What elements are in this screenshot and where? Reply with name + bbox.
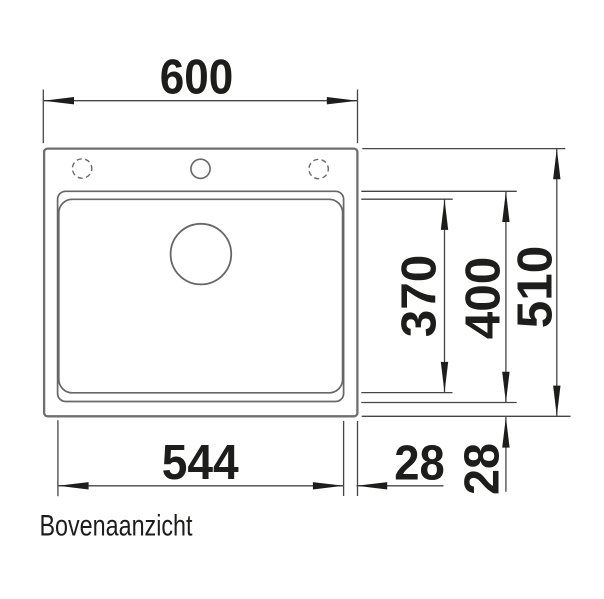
svg-text:370: 370: [393, 255, 447, 338]
svg-text:600: 600: [160, 50, 234, 104]
svg-text:Bovenaanzicht: Bovenaanzicht: [40, 510, 193, 543]
svg-text:544: 544: [162, 436, 239, 490]
svg-text:510: 510: [508, 246, 562, 329]
svg-text:28: 28: [394, 437, 445, 491]
svg-text:28: 28: [455, 443, 509, 495]
svg-text:400: 400: [456, 257, 510, 340]
